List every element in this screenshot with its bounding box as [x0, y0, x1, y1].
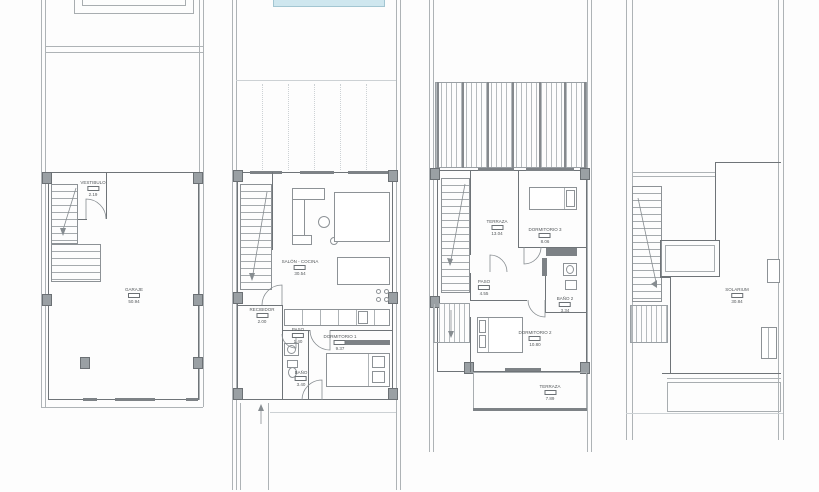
room-code-box [539, 233, 551, 238]
room-area: 30.84 [725, 299, 749, 304]
room-code-box [334, 340, 346, 345]
room-name: DORMITORIO 1 [324, 334, 357, 339]
room-label-dormitorio-3: DORMITORIO 3 8.06 [529, 227, 562, 244]
arrowhead-icon [447, 258, 453, 266]
room-name: PASO [292, 327, 304, 332]
annotation-overlay [0, 0, 819, 492]
room-area: 3.34 [557, 308, 574, 313]
room-label-dormitorio-1: DORMITORIO 1 9.37 [324, 334, 357, 351]
room-name: SOLARIUM [725, 287, 749, 292]
room-area: 3.40 [295, 382, 308, 387]
room-code-box [529, 336, 541, 341]
room-code-box [128, 293, 140, 298]
arrowhead-icon [60, 228, 66, 236]
room-label-bano-2: BAÑO 2 3.34 [557, 296, 574, 313]
room-code-box [559, 302, 571, 307]
room-area: 50.94 [125, 299, 143, 304]
room-code-box [292, 333, 304, 338]
stair-direction-line [253, 192, 267, 274]
room-label-terraza-2: TERRAZA 7.89 [539, 384, 560, 401]
room-code-box [295, 376, 307, 381]
door-swing-arc [262, 285, 282, 305]
room-label-garaje: GARAJE 50.94 [125, 287, 143, 304]
room-area: 2.00 [249, 319, 274, 324]
room-code-box [491, 225, 503, 230]
room-area: 10.80 [519, 342, 552, 347]
floor-plan-sheet: VESTIBULO 2.19 GARAJE 50.94 [0, 0, 819, 492]
room-label-vestibulo: VESTIBULO 2.19 [80, 180, 105, 197]
door-swing-arc [524, 247, 541, 264]
room-label-salon-cocina: SALÓN - COCINA 30.54 [282, 259, 319, 276]
room-label-dormitorio-2: DORMITORIO 2 10.80 [519, 330, 552, 347]
room-area: 30.54 [282, 271, 319, 276]
stair-direction-line [63, 188, 76, 230]
room-area: 2.19 [80, 192, 105, 197]
room-area: 4.55 [478, 291, 490, 296]
stair-direction-line [638, 198, 656, 282]
room-label-paso: PASO 4.55 [478, 279, 490, 296]
arrowhead-icon [258, 404, 264, 411]
room-area: 8.06 [529, 239, 562, 244]
room-label-recibidor: RECIBIDOR 2.00 [249, 307, 274, 324]
door-swing-arc [490, 255, 507, 272]
room-code-box [294, 265, 306, 270]
room-code-box [87, 186, 99, 191]
room-name: SALÓN - COCINA [282, 259, 319, 264]
arrowhead-icon [651, 280, 657, 288]
room-name: BAÑO [295, 370, 308, 375]
arrowhead-icon [249, 273, 255, 281]
room-name: DORMITORIO 2 [519, 330, 552, 335]
room-code-box [544, 390, 556, 395]
room-name: TERRAZA [486, 219, 507, 224]
room-code-box [731, 293, 743, 298]
room-label-solarium: SOLARIUM 30.84 [725, 287, 749, 304]
room-area: 9.37 [324, 346, 357, 351]
room-label-bano: BAÑO 3.40 [295, 370, 308, 387]
stair-direction-line [451, 184, 465, 260]
room-name: GARAJE [125, 287, 143, 292]
room-name: RECIBIDOR [249, 307, 274, 312]
room-label-paso: PASO 1.40 [292, 327, 304, 344]
room-label-terraza-1: TERRAZA 13.04 [486, 219, 507, 236]
door-swing-arc [528, 300, 545, 317]
room-name: TERRAZA [539, 384, 560, 389]
room-area: 13.04 [486, 231, 507, 236]
room-code-box [478, 285, 490, 290]
room-area: 1.40 [292, 339, 304, 344]
room-code-box [256, 313, 268, 318]
room-name: BAÑO 2 [557, 296, 574, 301]
room-name: VESTIBULO [80, 180, 105, 185]
room-name: PASO [478, 279, 490, 284]
room-area: 7.89 [539, 396, 560, 401]
room-name: DORMITORIO 3 [529, 227, 562, 232]
arrowhead-icon [448, 331, 454, 338]
door-swing-arc [86, 199, 106, 219]
